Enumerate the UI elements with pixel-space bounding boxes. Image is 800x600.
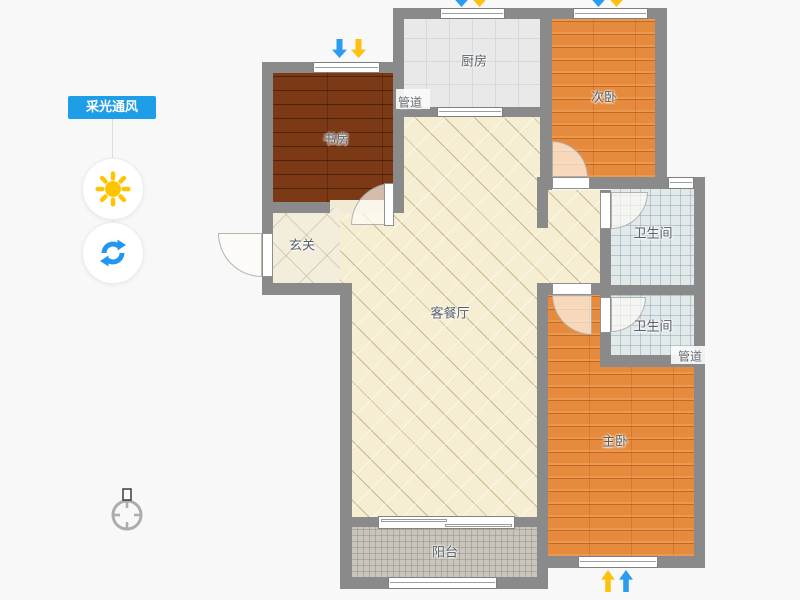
rotate-button[interactable]: [82, 222, 144, 284]
wall: [600, 285, 705, 295]
wind-arrow-icon: [591, 0, 606, 7]
bedroom2-window: [573, 8, 648, 19]
compass-icon: [108, 486, 148, 532]
room-label-entry: 玄关: [289, 235, 315, 254]
bedroom2-door: [552, 177, 590, 189]
wall: [655, 8, 667, 189]
room-label-bedroom2: 次卧: [591, 87, 617, 106]
light-arrow-icon: [609, 0, 624, 7]
light-arrow-icon: [351, 39, 366, 58]
wall: [340, 283, 352, 589]
rotate-icon: [97, 237, 129, 269]
light-arrow-icon: [601, 570, 615, 592]
balcony-sliding-door: [378, 516, 515, 529]
room-label-study: 书房: [323, 129, 349, 148]
study-window: [313, 62, 380, 73]
kitchen-pass-window: [437, 107, 503, 117]
room-label-bath1: 卫生间: [633, 223, 672, 242]
wall: [537, 283, 548, 589]
wall: [537, 177, 548, 228]
wind-arrow-icon: [332, 39, 347, 58]
duct-label-kitchen: 管道: [398, 94, 422, 111]
study-door: [384, 183, 394, 226]
balcony-window: [388, 577, 497, 589]
wall: [694, 177, 705, 568]
room-label-kitchen: 厨房: [461, 51, 487, 70]
lighting-ventilation-toggle[interactable]: 采光通风: [68, 96, 156, 119]
bath1-door: [600, 192, 611, 229]
room-label-bath2: 卫生间: [633, 316, 672, 335]
sun-icon: [95, 171, 131, 207]
bath1-window: [668, 177, 694, 189]
wall: [540, 8, 552, 190]
entry-door: [262, 233, 273, 277]
sunlight-button[interactable]: [82, 158, 144, 220]
bath2-door: [600, 297, 611, 333]
kitchen-window: [440, 8, 505, 19]
room-label-living: 客餐厅: [430, 303, 469, 322]
duct-label-bath: 管道: [678, 348, 702, 365]
wall: [262, 283, 352, 295]
wall: [262, 202, 330, 213]
light-arrow-icon: [472, 0, 487, 7]
room-label-master: 主卧: [602, 431, 628, 450]
entry-door-arc: [218, 233, 262, 277]
room-label-balcony: 阳台: [432, 542, 458, 561]
wind-arrow-icon: [454, 0, 469, 7]
master-door: [552, 283, 592, 295]
wind-arrow-icon: [619, 570, 633, 592]
connector-line: [112, 119, 113, 159]
master-window: [578, 556, 658, 568]
floorplan-viewer: 采光通风: [0, 0, 800, 600]
